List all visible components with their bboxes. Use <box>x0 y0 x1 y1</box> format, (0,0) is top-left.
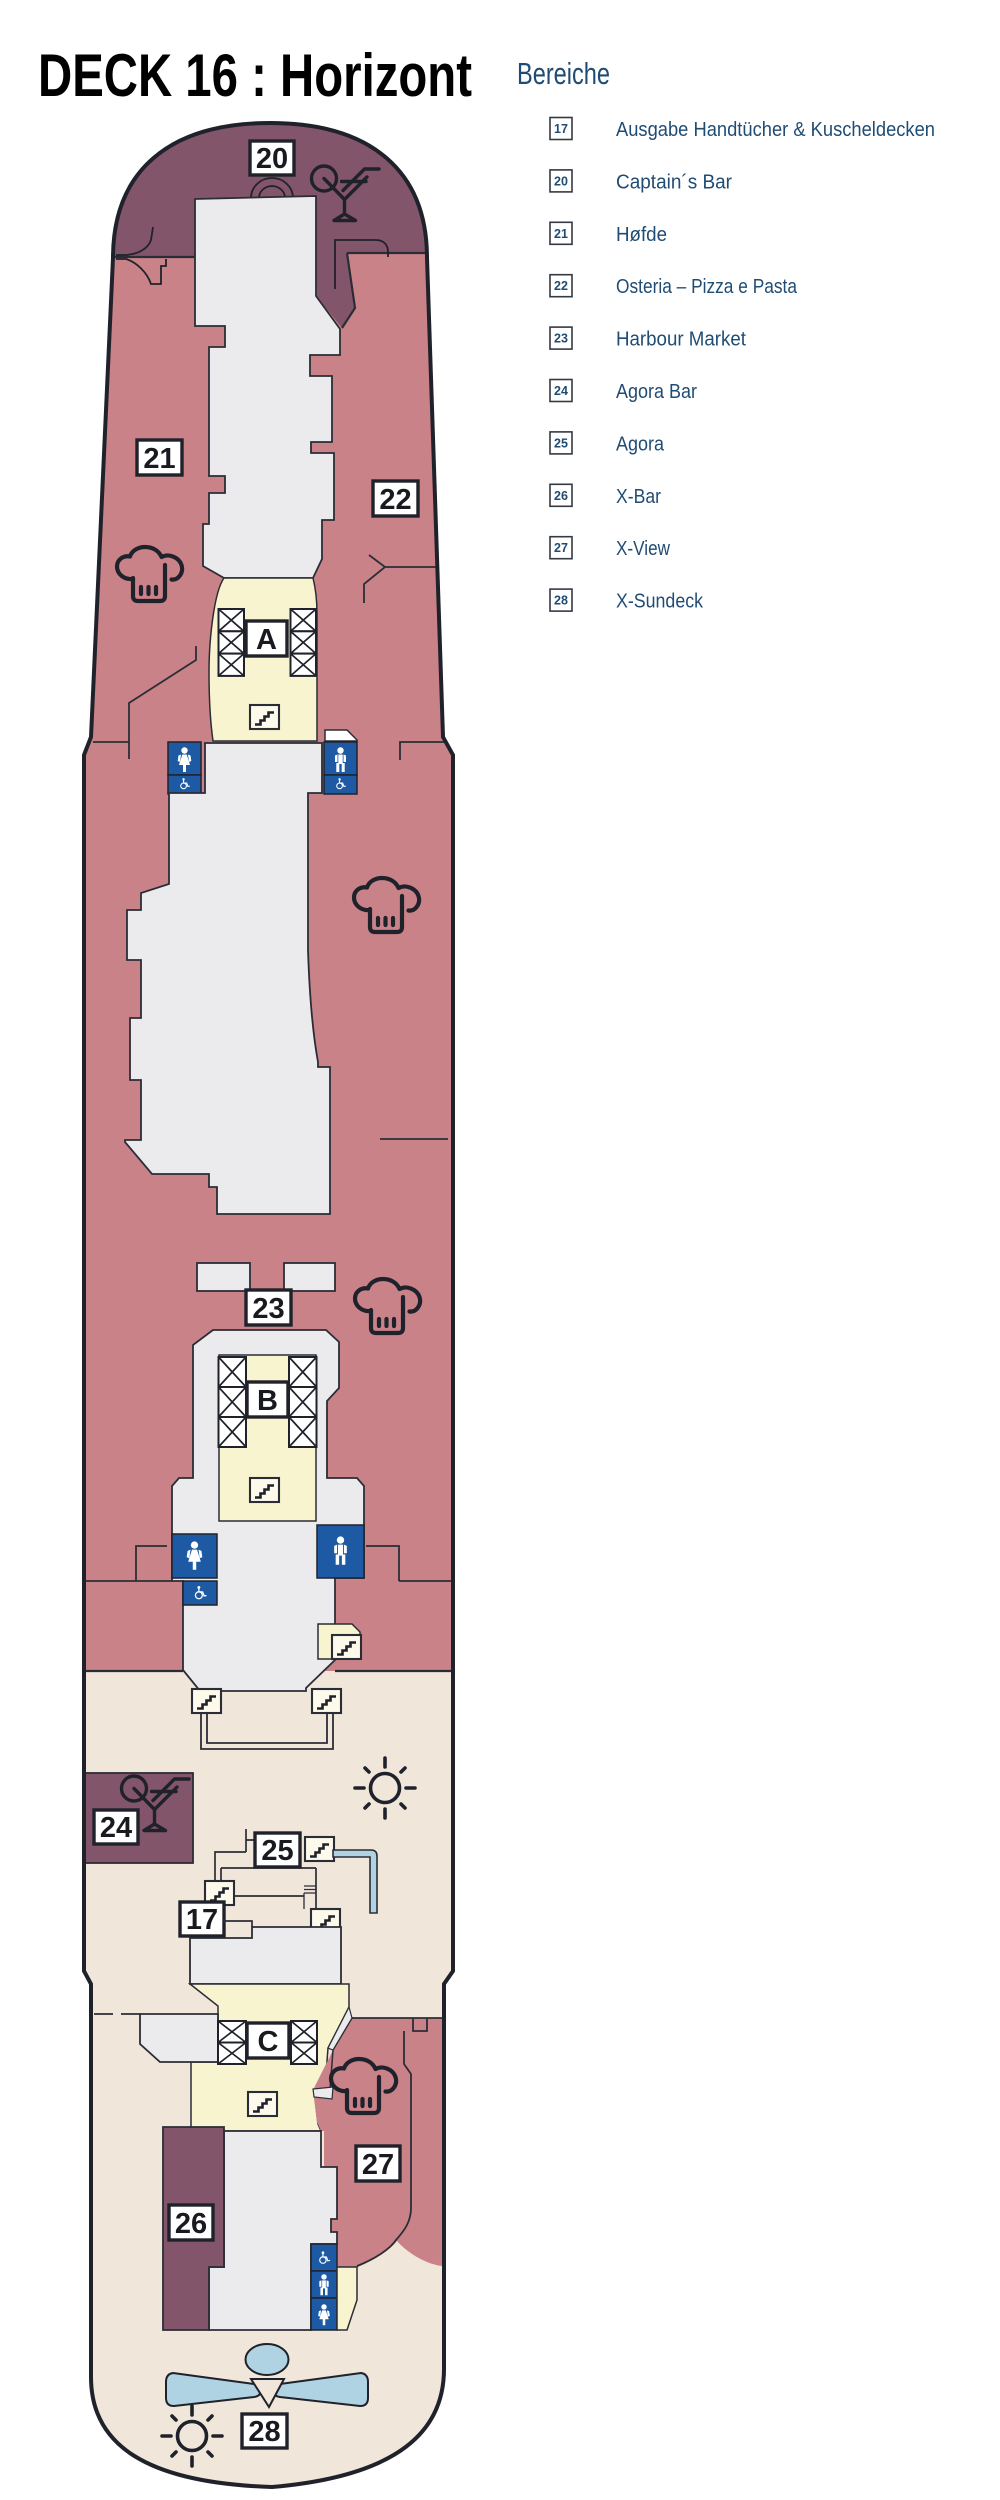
svg-text:22: 22 <box>554 279 568 293</box>
svg-text:25: 25 <box>554 436 568 450</box>
svg-text:21: 21 <box>554 227 568 241</box>
svg-text:23: 23 <box>554 332 568 346</box>
svg-text:17: 17 <box>186 1904 218 1936</box>
svg-text:28: 28 <box>248 2416 280 2448</box>
svg-text:23: 23 <box>252 1293 284 1325</box>
svg-text:A: A <box>256 624 277 656</box>
svg-text:25: 25 <box>261 1835 293 1867</box>
svg-text:Agora: Agora <box>616 432 665 455</box>
svg-text:Bereiche: Bereiche <box>517 56 610 91</box>
svg-text:27: 27 <box>362 2149 394 2181</box>
svg-text:17: 17 <box>554 122 568 136</box>
svg-text:Ausgabe Handtücher & Kuschelde: Ausgabe Handtücher & Kuscheldecken <box>616 118 935 141</box>
svg-text:Høfde: Høfde <box>616 223 667 246</box>
svg-text:28: 28 <box>554 594 568 608</box>
svg-text:Harbour Market: Harbour Market <box>616 328 746 351</box>
svg-text:C: C <box>258 2026 279 2058</box>
svg-text:Captain´s Bar: Captain´s Bar <box>616 170 732 193</box>
svg-text:24: 24 <box>554 384 568 398</box>
svg-text:X-Bar: X-Bar <box>616 485 661 508</box>
svg-text:21: 21 <box>143 443 175 475</box>
svg-text:20: 20 <box>554 174 568 188</box>
svg-text:27: 27 <box>554 541 568 555</box>
svg-text:DECK 16 : Horizont: DECK 16 : Horizont <box>38 42 472 109</box>
svg-text:20: 20 <box>256 143 288 175</box>
svg-text:Osteria – Pizza e Pasta: Osteria – Pizza e Pasta <box>616 275 797 298</box>
svg-text:X-View: X-View <box>616 537 670 560</box>
svg-text:B: B <box>257 1385 278 1417</box>
svg-text:22: 22 <box>379 484 411 516</box>
svg-text:26: 26 <box>554 489 568 503</box>
svg-text:X-Sundeck: X-Sundeck <box>616 590 704 613</box>
svg-text:24: 24 <box>100 1812 132 1844</box>
svg-text:Agora Bar: Agora Bar <box>616 380 697 403</box>
svg-text:26: 26 <box>175 2208 207 2240</box>
